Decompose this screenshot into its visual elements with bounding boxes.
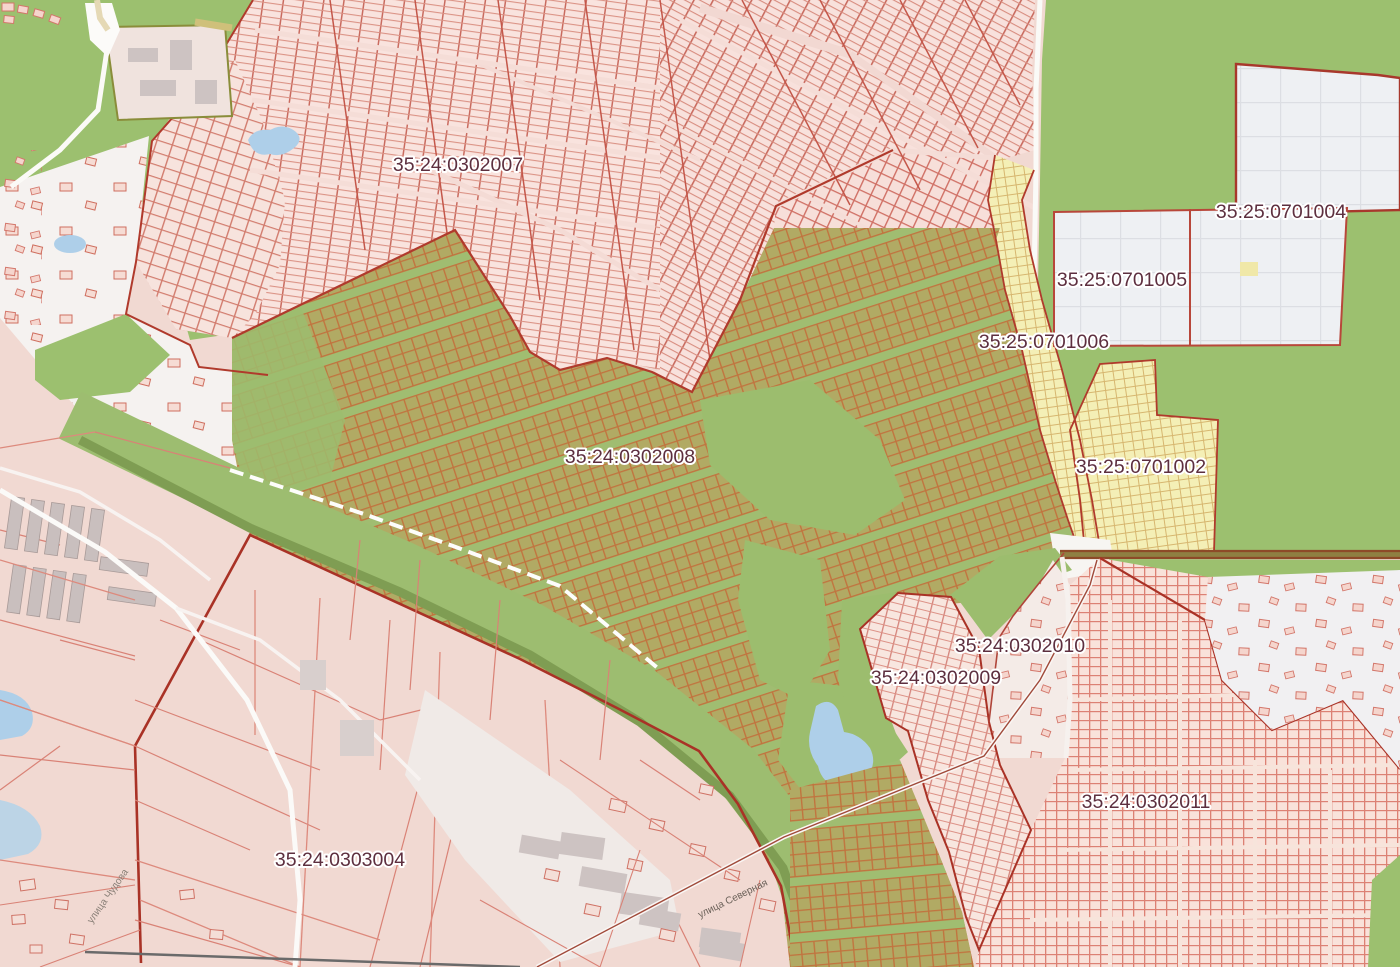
svg-text:35:25:0701006: 35:25:0701006 bbox=[979, 331, 1109, 353]
svg-text:35:24:0302011: 35:24:0302011 bbox=[1082, 791, 1211, 813]
svg-text:35:24:0302009: 35:24:0302009 bbox=[871, 667, 1001, 689]
svg-text:35:25:0701005: 35:25:0701005 bbox=[1057, 269, 1187, 291]
svg-text:35:24:0302010: 35:24:0302010 bbox=[955, 635, 1085, 657]
svg-text:35:25:0701004: 35:25:0701004 bbox=[1216, 201, 1346, 223]
svg-text:35:24:0303004: 35:24:0303004 bbox=[275, 849, 405, 871]
svg-text:35:25:0701002: 35:25:0701002 bbox=[1076, 456, 1206, 478]
svg-text:35:24:0302007: 35:24:0302007 bbox=[393, 154, 523, 176]
svg-text:35:24:0302008: 35:24:0302008 bbox=[565, 446, 695, 468]
